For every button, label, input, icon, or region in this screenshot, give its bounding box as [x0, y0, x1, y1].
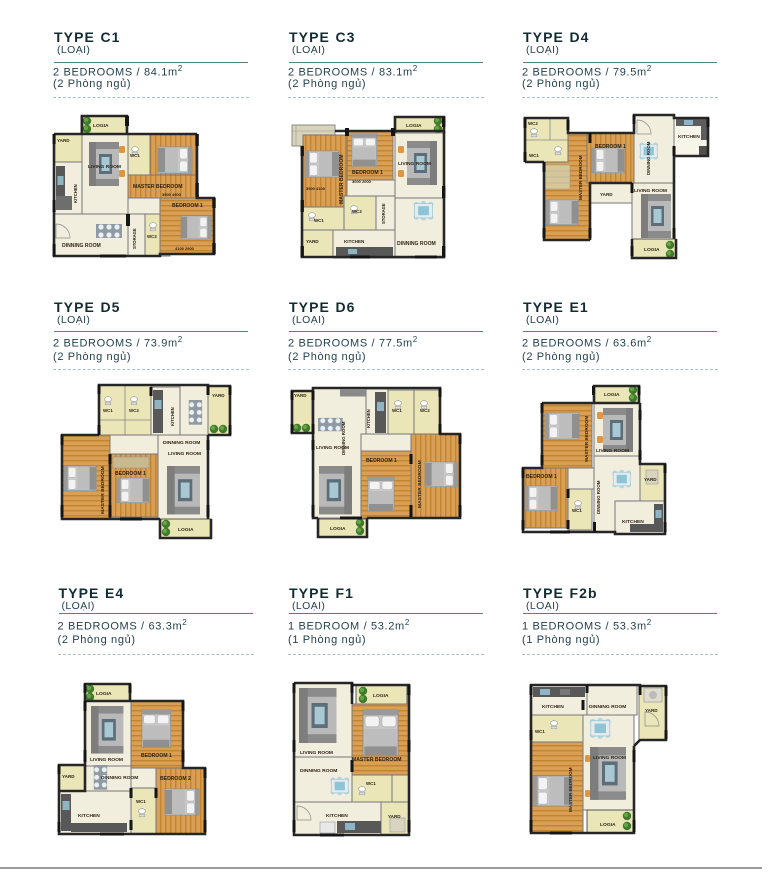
svg-text:DINNING ROOM: DINNING ROOM [589, 704, 626, 710]
svg-text:LOGIA: LOGIA [600, 822, 616, 828]
svg-text:WC1: WC1 [103, 408, 113, 413]
svg-text:4100 2900: 4100 2900 [175, 246, 195, 251]
svg-text:KITCHEN: KITCHEN [78, 813, 100, 819]
svg-text:WC1: WC1 [572, 508, 582, 513]
svg-text:LOGIA: LOGIA [330, 526, 346, 532]
svg-text:KITCHEN: KITCHEN [678, 134, 700, 140]
svg-text:KITCHEN: KITCHEN [622, 519, 644, 525]
svg-text:WC2: WC2 [147, 234, 157, 239]
svg-text:LOGIA: LOGIA [604, 392, 620, 398]
svg-text:BEDROOM 1: BEDROOM 1 [366, 458, 397, 464]
svg-text:MASTER BEDROOM: MASTER BEDROOM [417, 460, 423, 508]
svg-text:LOGIA: LOGIA [406, 123, 422, 129]
svg-text:WC2: WC2 [420, 408, 430, 413]
svg-text:YARD: YARD [306, 239, 319, 244]
svg-text:YARD: YARD [212, 393, 225, 398]
svg-text:LOGIA: LOGIA [93, 123, 109, 129]
svg-text:MASTER BEDROOM: MASTER BEDROOM [352, 757, 402, 763]
svg-text:WC1: WC1 [130, 153, 140, 158]
svg-text:DINNING ROOM: DINNING ROOM [596, 480, 601, 514]
svg-text:LOGIA: LOGIA [96, 691, 112, 697]
svg-text:WC1: WC1 [535, 729, 545, 734]
svg-text:LIVING ROOM: LIVING ROOM [168, 451, 201, 457]
svg-text:YARD: YARD [645, 708, 658, 713]
svg-text:MASTER BEDROOM: MASTER BEDROOM [339, 154, 345, 204]
svg-text:LOGIA: LOGIA [373, 693, 389, 699]
svg-text:LIVING ROOM: LIVING ROOM [634, 188, 667, 194]
svg-text:KITCHEN: KITCHEN [170, 407, 175, 426]
svg-text:DINNING ROOM: DINNING ROOM [646, 141, 651, 175]
svg-text:BEDROOM 1: BEDROOM 1 [115, 471, 146, 477]
svg-text:WC1: WC1 [136, 799, 146, 804]
svg-text:STORAGE: STORAGE [132, 228, 137, 249]
svg-text:LIVING ROOM: LIVING ROOM [593, 755, 626, 761]
svg-text:LIVING ROOM: LIVING ROOM [300, 750, 333, 756]
svg-text:LIVING ROOM: LIVING ROOM [90, 757, 123, 763]
svg-text:YARD: YARD [388, 814, 401, 819]
svg-text:LIVING ROOM: LIVING ROOM [596, 448, 629, 454]
svg-text:MASTER BEDROOM: MASTER BEDROOM [584, 416, 590, 462]
svg-text:YARD: YARD [294, 393, 307, 398]
svg-text:LIVING ROOM: LIVING ROOM [398, 161, 431, 167]
svg-text:WC2: WC2 [352, 209, 362, 214]
svg-text:KITCHEN: KITCHEN [344, 239, 364, 244]
svg-text:YARD: YARD [62, 774, 75, 779]
svg-text:3000 2000: 3000 2000 [352, 179, 372, 184]
svg-text:KITCHEN: KITCHEN [366, 409, 371, 428]
svg-text:WC1: WC1 [314, 218, 324, 223]
svg-text:BEDROOM 1: BEDROOM 1 [526, 474, 557, 480]
svg-text:3500 4900: 3500 4900 [162, 192, 182, 197]
svg-text:MASTER BEDROOM: MASTER BEDROOM [100, 466, 106, 514]
svg-text:LOGIA: LOGIA [178, 527, 194, 533]
svg-text:LIVING ROOM: LIVING ROOM [88, 164, 121, 170]
svg-text:WC2: WC2 [129, 408, 139, 413]
svg-text:BEDROOM 1: BEDROOM 1 [352, 170, 383, 176]
svg-text:MASTER BEDROOM: MASTER BEDROOM [568, 767, 573, 812]
svg-text:YARD: YARD [644, 477, 657, 482]
svg-text:WC1: WC1 [366, 781, 376, 786]
svg-text:BEDROOM 2: BEDROOM 2 [160, 776, 191, 782]
svg-text:DINNING ROOM: DINNING ROOM [397, 241, 436, 247]
svg-text:STORAGE: STORAGE [381, 203, 386, 224]
svg-text:KITCHEN: KITCHEN [326, 813, 348, 819]
svg-text:MASTER BEDROOM: MASTER BEDROOM [578, 155, 583, 200]
svg-text:DINNING ROOM: DINNING ROOM [62, 243, 101, 249]
svg-text:LIVING ROOM: LIVING ROOM [316, 445, 349, 451]
svg-text:3500 4100: 3500 4100 [306, 186, 326, 191]
svg-text:WC1: WC1 [529, 153, 539, 158]
svg-text:KITCHEN: KITCHEN [73, 184, 78, 203]
svg-text:BEDROOM 1: BEDROOM 1 [172, 203, 203, 209]
svg-text:BEDROOM 1: BEDROOM 1 [595, 144, 626, 150]
svg-text:MASTER BEDROOM: MASTER BEDROOM [133, 184, 183, 190]
svg-text:KITCHEN: KITCHEN [542, 704, 564, 710]
svg-text:YARD: YARD [600, 192, 613, 197]
svg-text:DINNING ROOM: DINNING ROOM [101, 775, 138, 781]
svg-text:DINNING ROOM: DINNING ROOM [163, 440, 200, 446]
svg-text:WC2: WC2 [528, 121, 538, 126]
svg-text:DINNING ROOM: DINNING ROOM [300, 768, 337, 774]
svg-text:WC1: WC1 [392, 408, 402, 413]
svg-text:BEDROOM 1: BEDROOM 1 [141, 753, 172, 759]
svg-text:YARD: YARD [57, 138, 70, 143]
svg-text:LOGIA: LOGIA [644, 247, 660, 253]
